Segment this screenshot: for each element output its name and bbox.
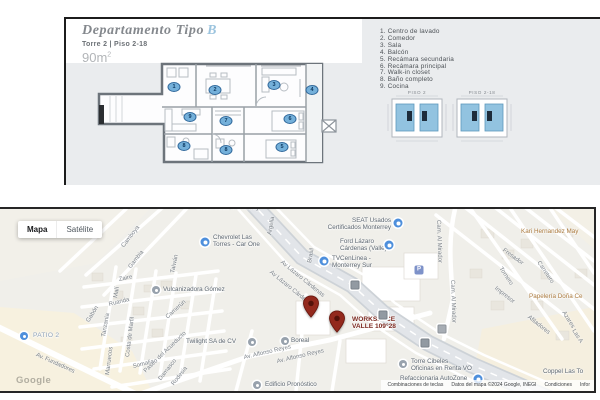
poi-label[interactable]: Universidad Monterrey — [196, 207, 259, 212]
street-label: Cam. Al Mirador — [435, 220, 442, 263]
poi-label[interactable]: Edificio Pronóstico — [265, 382, 317, 389]
map-button[interactable]: Mapa — [18, 221, 56, 238]
street-label: Costa de Marfil — [125, 317, 136, 358]
street-label: Av. Fundadores — [35, 352, 76, 374]
street-label: Fresador — [501, 248, 524, 267]
street-label: Argelia — [267, 216, 276, 235]
plan-marker-5: 5 — [276, 142, 289, 152]
poi-blue-icon[interactable] — [201, 238, 210, 247]
poi-blue-icon[interactable] — [385, 241, 394, 250]
street-label: Gambia — [128, 250, 146, 270]
plan-marker-1: 1 — [168, 82, 181, 92]
poi-label[interactable]: Chevrolet LasTorres - Car One — [213, 235, 260, 249]
floorplan-card: Departamento TipoB Torre 2 | Piso 2-18 9… — [64, 17, 600, 185]
street-label: Rodesia — [171, 366, 189, 387]
street-label: Zaire — [118, 274, 133, 283]
poi-label[interactable]: Papelería Doña Ce — [529, 294, 583, 301]
poi-gray-icon[interactable] — [152, 286, 160, 294]
street-label: Camboya — [121, 225, 142, 249]
satellite-button[interactable]: Satélite — [56, 221, 102, 238]
street-label: Av Lázaro Cárdenas — [279, 260, 325, 299]
street-label: Azares — [560, 310, 575, 329]
poi-label[interactable]: PATIO 2 — [33, 333, 59, 340]
poi-label[interactable]: Kari Hernandez May — [521, 229, 578, 236]
plan-marker-3: 3 — [268, 80, 281, 90]
street-label: Afiladores — [526, 315, 551, 336]
floorplan-markers: 1234987865 — [66, 19, 600, 185]
plan-marker-8: 8 — [220, 145, 233, 155]
map-pin[interactable] — [328, 310, 346, 338]
poi-blue-sm-icon[interactable] — [20, 332, 28, 340]
plan-marker-9: 9 — [184, 112, 197, 122]
poi-label[interactable]: TVCenLinea -Monterrey Sur — [332, 256, 372, 270]
poi-blue-icon[interactable] — [394, 219, 403, 228]
street-label: Malí — [113, 286, 121, 298]
google-watermark[interactable]: Google — [16, 375, 51, 386]
parking-icon[interactable]: P — [415, 266, 424, 275]
street-label: Gabón — [85, 305, 100, 323]
poi-label[interactable]: WORKSPACEVALLE 109°28 — [352, 317, 396, 331]
piso-label-2: PISO 2-18 — [457, 90, 507, 95]
poi-label[interactable]: Torre CibelesOficinas en Renta VO — [411, 359, 472, 373]
poi-gray-icon[interactable] — [281, 337, 289, 345]
plan-marker-2: 2 — [209, 85, 222, 95]
poi-label[interactable]: Twilight SA de CV — [186, 339, 236, 346]
street-label: Taiwán — [170, 254, 180, 274]
plan-marker-7: 7 — [220, 116, 233, 126]
street-label: Ruanda — [108, 297, 130, 308]
poi-gray-sq-icon[interactable] — [438, 325, 447, 334]
footer-item[interactable]: Combinaciones de teclas — [387, 382, 443, 388]
footer-item[interactable]: Condiciones — [544, 382, 572, 388]
poi-gray-icon[interactable] — [248, 338, 256, 346]
street-label: Tornero — [498, 266, 514, 286]
poi-label[interactable]: Coppel Las To — [543, 369, 583, 376]
poi-label[interactable]: Vulcanizadora Gómez — [163, 287, 225, 294]
street-label: Camerún — [165, 299, 187, 320]
poi-label[interactable]: Boreal — [291, 338, 309, 345]
map-pin[interactable] — [302, 295, 320, 323]
piso-label-1: PISO 2 — [392, 90, 442, 95]
street-label: Tanzania — [101, 313, 111, 338]
plan-marker-4: 4 — [306, 85, 319, 95]
road-shield-icon[interactable] — [351, 281, 360, 290]
road-shield-icon[interactable] — [379, 311, 388, 320]
street-label: Brasil — [307, 248, 316, 264]
street-label: Las A — [570, 328, 583, 344]
listing-page: Departamento TipoB Torre 2 | Piso 2-18 9… — [0, 0, 600, 400]
poi-gray-icon[interactable] — [399, 360, 407, 368]
poi-label[interactable]: SEAT UsadosCertificados Monterrey — [328, 218, 391, 232]
plan-marker-6: 6 — [284, 114, 297, 124]
footer-item[interactable]: Infor — [580, 382, 590, 388]
poi-label[interactable]: Ford LázaroCárdenas (Valle) — [340, 239, 387, 253]
street-label: Cam. Al Mirador — [449, 280, 456, 323]
poi-blue-icon[interactable] — [320, 257, 329, 266]
map-type-control: Mapa Satélite — [18, 221, 102, 238]
street-label: Marruecos — [105, 347, 114, 376]
street-label: Impresor — [493, 286, 515, 305]
map-widget[interactable]: CamboyaGambiaTaiwánArgeliaBrasilZaireMal… — [0, 207, 596, 393]
footer-item: Datos del mapa ©2024 Google, INEGI — [451, 382, 536, 388]
street-label: Carretero — [536, 260, 555, 284]
map-footer: Combinaciones de teclasDatos del mapa ©2… — [381, 380, 594, 391]
poi-gray-icon[interactable] — [253, 381, 261, 389]
road-shield-icon[interactable] — [421, 339, 430, 348]
plan-marker-8: 8 — [178, 141, 191, 151]
